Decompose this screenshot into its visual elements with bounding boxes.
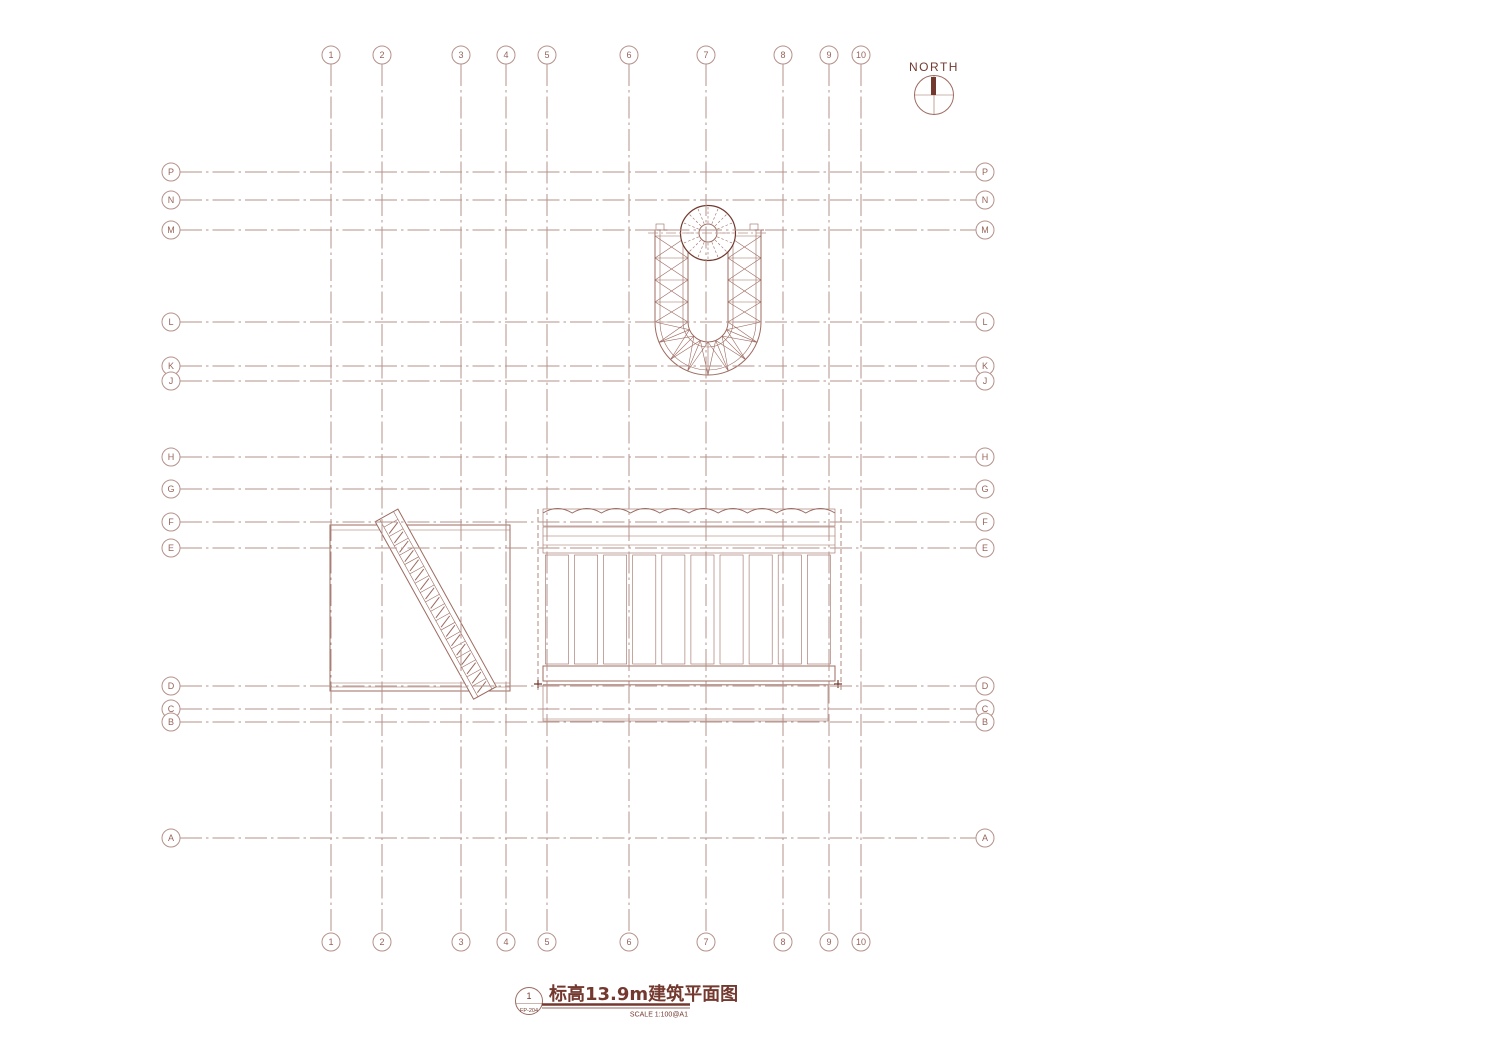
north-needle (931, 77, 936, 95)
grid-bubble-col-3-bottom-label: 3 (458, 937, 463, 947)
diagonal-hatch-band (543, 666, 835, 681)
hall-column (575, 555, 598, 664)
roof-fascia-gaps (565, 510, 806, 526)
grid-bubble-col-4-bottom-label: 4 (503, 937, 508, 947)
column-array (545, 555, 830, 664)
grid-bubble-col-8-bottom-label: 8 (780, 937, 785, 947)
grid-bubble-col-6-bottom-label: 6 (626, 937, 631, 947)
grid-bubble-row-J-left-label: J (169, 376, 174, 386)
grid-bubble-row-B-right-label: B (982, 717, 988, 727)
grid-bubble-row-P-left-label: P (168, 167, 174, 177)
grid-bubble-col-2-top-label: 2 (379, 50, 384, 60)
detail-sheet: FP-204 (520, 1008, 538, 1014)
north-label: NORTH (909, 60, 959, 74)
grid-bubble-col-6-top-label: 6 (626, 50, 631, 60)
grid-bubble-col-2-bottom-label: 2 (379, 937, 384, 947)
lattice-gondola-structure (648, 206, 768, 376)
north-indicator: NORTH (909, 60, 959, 115)
corner-cross-left (534, 680, 542, 688)
escalator-right-rail (394, 511, 492, 689)
grid-bubble-col-5-bottom-label: 5 (544, 937, 549, 947)
grid-bubble-col-1-top-label: 1 (328, 50, 333, 60)
grid-bubble-col-8-top-label: 8 (780, 50, 785, 60)
floor-plan-canvas: 1122334455667788991010PPNNMMLLKKJJHHGGFF… (0, 0, 1500, 1060)
grid-bubble-row-G-left-label: G (167, 484, 174, 494)
grid-bubble-col-9-bottom-label: 9 (826, 937, 831, 947)
u-cap-box-left (656, 224, 664, 230)
hall-column (691, 555, 714, 664)
hall-column (749, 555, 772, 664)
louver-roof-block (330, 509, 510, 699)
drawing-sheet: 1122334455667788991010PPNNMMLLKKJJHHGGFF… (0, 0, 1500, 1060)
scale-note: SCALE 1:100@A1 (630, 1012, 688, 1019)
hall-column (662, 555, 685, 664)
grid-bubble-row-F-left-label: F (168, 517, 174, 527)
detail-number: 1 (526, 991, 531, 1001)
grid-bubble-row-H-left-label: H (168, 452, 175, 462)
grid-bubble-col-1-bottom-label: 1 (328, 937, 333, 947)
grid-bubble-row-A-right-label: A (982, 833, 988, 843)
column-hall-block (534, 509, 842, 722)
grid-bubble-col-10-bottom-label: 10 (856, 937, 866, 947)
grid-bubble-row-F-right-label: F (982, 517, 988, 527)
grid-bubble-row-L-right-label: L (982, 317, 987, 327)
hall-column (633, 555, 656, 664)
grid-bubble-row-J-right-label: J (983, 376, 988, 386)
grid-axes-layer: 1122334455667788991010PPNNMMLLKKJJHHGGFF… (162, 46, 994, 951)
grid-bubble-row-N-left-label: N (168, 195, 175, 205)
hall-column (720, 555, 743, 664)
grid-bubble-row-D-left-label: D (168, 681, 175, 691)
u-cap-box-right (750, 224, 758, 230)
escalator (375, 509, 496, 699)
grid-bubble-row-D-right-label: D (982, 681, 989, 691)
grid-bubble-row-M-left-label: M (167, 225, 175, 235)
grid-bubble-col-7-top-label: 7 (703, 50, 708, 60)
grid-bubble-col-4-top-label: 4 (503, 50, 508, 60)
grid-bubble-col-7-bottom-label: 7 (703, 937, 708, 947)
grid-bubble-row-G-right-label: G (981, 484, 988, 494)
title-block: 1 FP-204 标高13.9m建筑平面图 SCALE 1:100@A1 (516, 983, 739, 1019)
grid-bubble-col-5-top-label: 5 (544, 50, 549, 60)
hall-column (807, 555, 830, 664)
drawing-title: 标高13.9m建筑平面图 (548, 983, 738, 1005)
grid-bubble-col-10-top-label: 10 (856, 50, 866, 60)
grid-bubble-row-A-left-label: A (168, 833, 174, 843)
grid-bubble-row-K-right-label: K (982, 361, 988, 371)
grid-bubble-row-E-right-label: E (982, 543, 988, 553)
grid-bubble-row-K-left-label: K (168, 361, 174, 371)
hall-column (545, 555, 568, 664)
grid-bubble-row-E-left-label: E (168, 543, 174, 553)
grid-bubble-col-3-top-label: 3 (458, 50, 463, 60)
roof-fascia-strip (543, 509, 835, 526)
grid-bubble-row-H-right-label: H (982, 452, 989, 462)
hall-column (604, 555, 627, 664)
grid-bubble-row-B-left-label: B (168, 717, 174, 727)
grid-bubble-row-P-right-label: P (982, 167, 988, 177)
grid-bubble-col-9-top-label: 9 (826, 50, 831, 60)
grid-bubble-row-M-right-label: M (981, 225, 989, 235)
grid-bubble-row-N-right-label: N (982, 195, 989, 205)
speckle-band (543, 527, 835, 553)
grid-bubble-row-L-left-label: L (168, 317, 173, 327)
hall-column (778, 555, 801, 664)
lower-outline-rect (543, 685, 828, 721)
